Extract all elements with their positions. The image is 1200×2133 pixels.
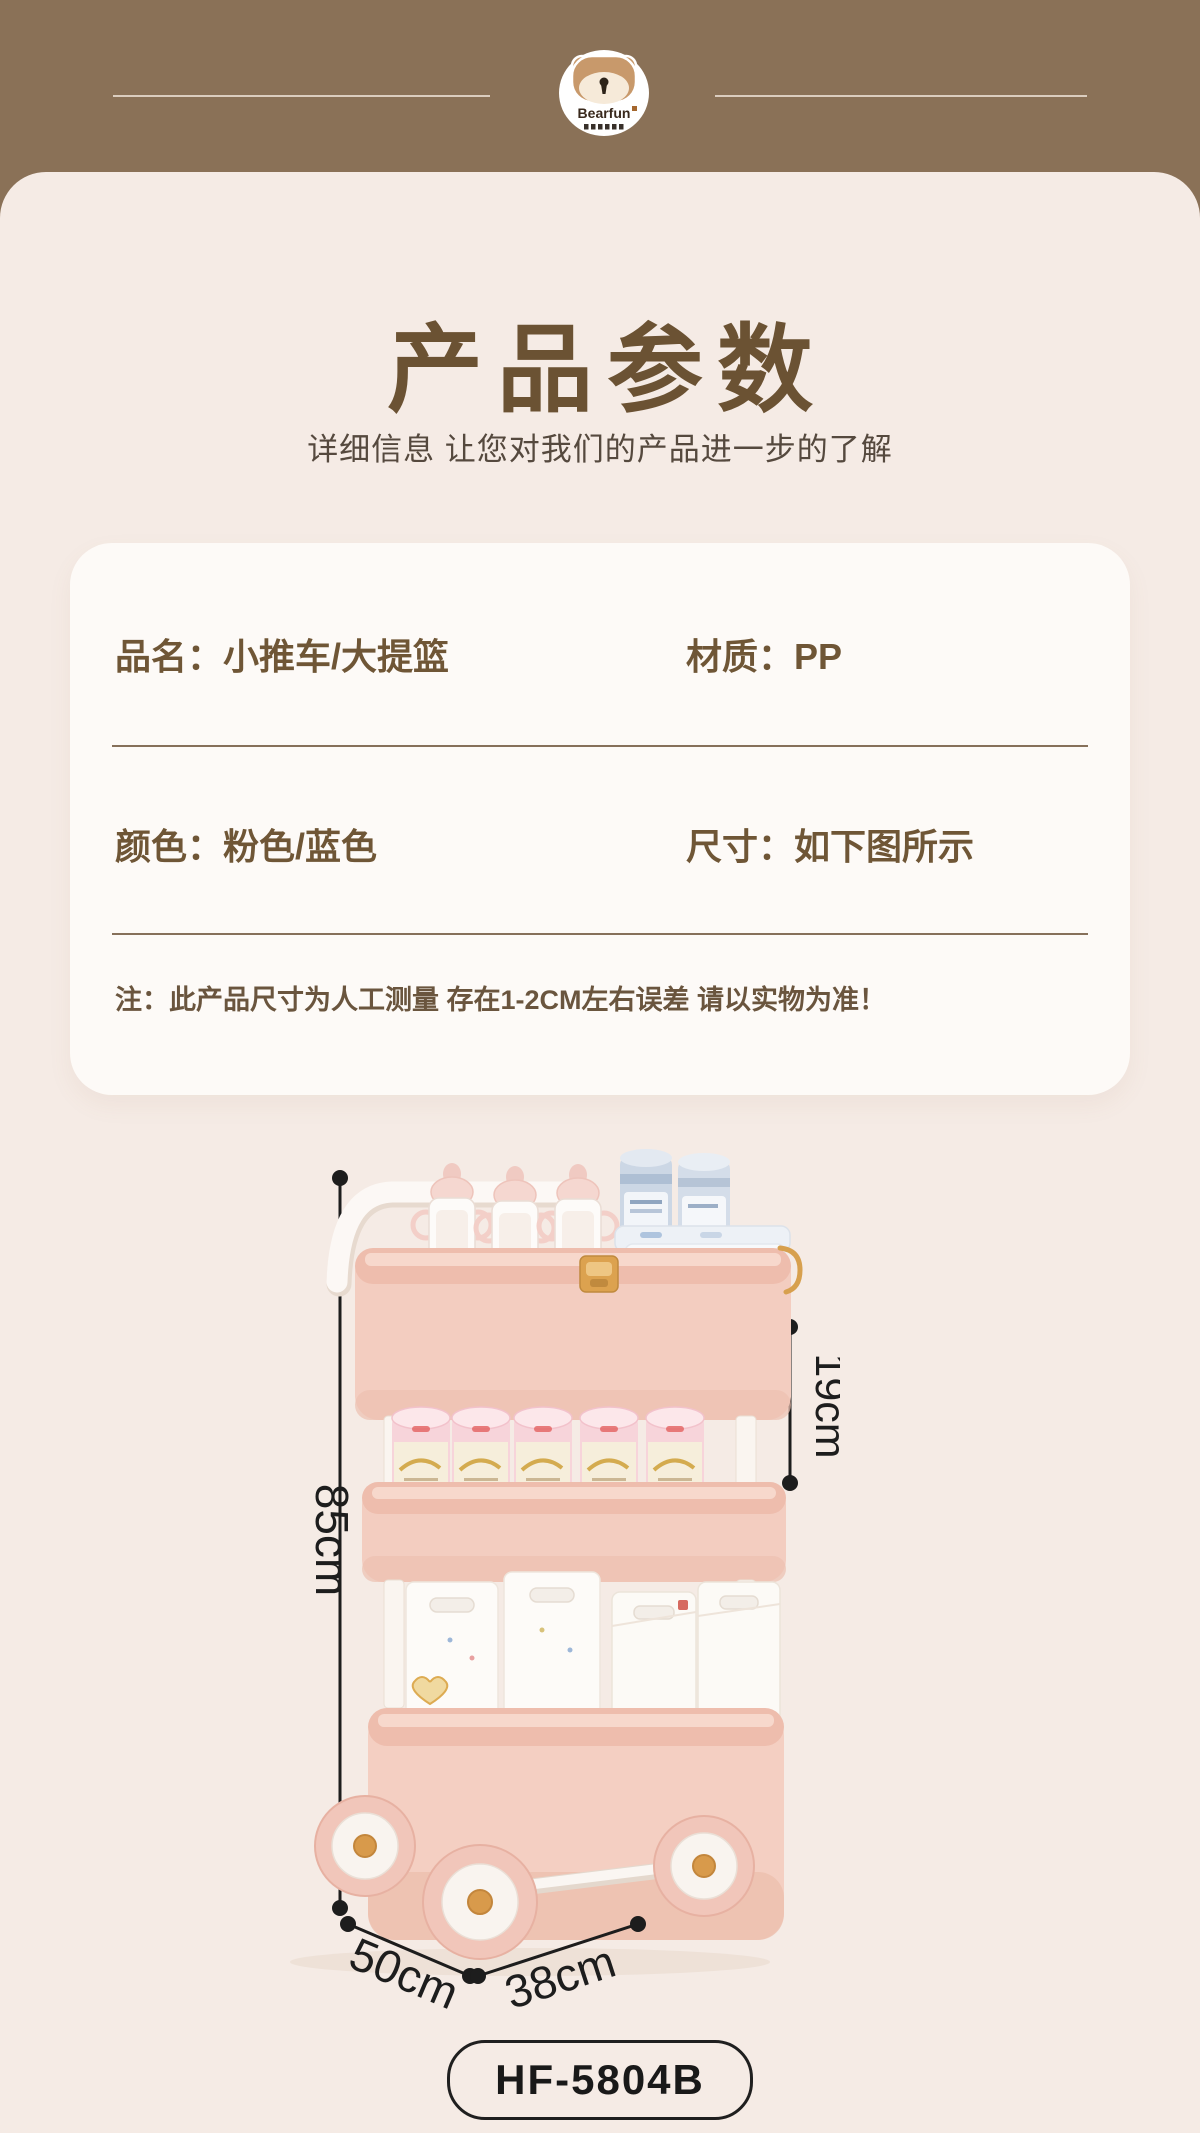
model-code: HF-5804B bbox=[495, 2056, 705, 2104]
diaper-cartons bbox=[406, 1572, 780, 1722]
wheel-rear-left bbox=[315, 1796, 415, 1896]
bearfun-logo: Bearfun bbox=[558, 48, 650, 140]
registered-mark-icon bbox=[632, 106, 637, 111]
trolley-illustration bbox=[290, 1149, 800, 1976]
spec-product-name: 品名：小推车/大提篮 bbox=[115, 628, 449, 680]
spec-size: 尺寸：如下图所示 bbox=[686, 818, 974, 870]
spec-row: 颜色：粉色/蓝色 尺寸：如下图所示 bbox=[70, 818, 1130, 866]
spec-card: 品名：小推车/大提篮 材质：PP 颜色：粉色/蓝色 尺寸：如下图所示 注：此产品… bbox=[70, 543, 1130, 1095]
product-spec-page: Bearfun 产品参数 详细信息 让您对我们的产品进一步的了解 品名：小推车/… bbox=[0, 0, 1200, 2133]
brand-name: Bearfun bbox=[578, 105, 631, 121]
spec-note: 注：此产品尺寸为人工测量 存在1-2CM左右误差 请以实物为准！ bbox=[115, 978, 886, 1017]
spec-divider bbox=[112, 745, 1088, 747]
wheel-front bbox=[423, 1845, 537, 1959]
page-subtitle: 详细信息 让您对我们的产品进一步的了解 bbox=[0, 424, 1200, 469]
product-dimension-figure: 85cm 19cm bbox=[280, 1130, 840, 2010]
top-tier bbox=[355, 1248, 791, 1420]
content-panel: 产品参数 详细信息 让您对我们的产品进一步的了解 品名：小推车/大提篮 材质：P… bbox=[0, 172, 1200, 2133]
wheel-right bbox=[654, 1816, 754, 1916]
spec-row: 品名：小推车/大提篮 材质：PP bbox=[70, 628, 1130, 676]
model-code-badge: HF-5804B bbox=[447, 2040, 753, 2120]
header-divider-right bbox=[715, 95, 1087, 97]
spec-material: 材质：PP bbox=[686, 628, 842, 680]
middle-tier bbox=[362, 1482, 786, 1582]
header-divider-left bbox=[113, 95, 490, 97]
page-title: 产品参数 bbox=[0, 292, 1200, 431]
spec-color: 颜色：粉色/蓝色 bbox=[115, 818, 377, 870]
gold-clasp bbox=[580, 1256, 618, 1292]
tier-gap-dimension-label: 19cm bbox=[806, 1353, 840, 1458]
spec-divider bbox=[112, 933, 1088, 935]
height-dimension-label: 85cm bbox=[306, 1484, 358, 1596]
